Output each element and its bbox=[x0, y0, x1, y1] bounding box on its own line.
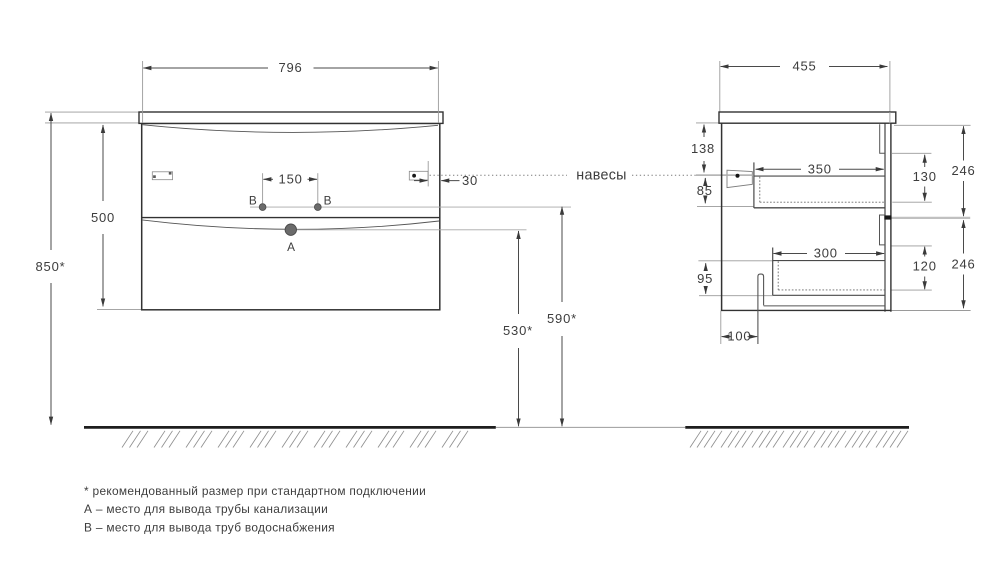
svg-text:500: 500 bbox=[91, 210, 115, 225]
svg-text:530*: 530* bbox=[503, 323, 533, 338]
svg-text:A: A bbox=[287, 240, 295, 254]
svg-text:30: 30 bbox=[462, 173, 478, 188]
svg-text:455: 455 bbox=[792, 59, 816, 74]
svg-text:246: 246 bbox=[951, 256, 975, 271]
svg-text:590*: 590* bbox=[547, 311, 577, 326]
svg-text:навесы: навесы bbox=[576, 167, 626, 183]
svg-text:А – место для вывода трубы кан: А – место для вывода трубы канализации bbox=[84, 502, 328, 516]
svg-text:B: B bbox=[324, 194, 332, 208]
svg-text:120: 120 bbox=[913, 259, 937, 274]
svg-text:150: 150 bbox=[279, 171, 303, 186]
svg-text:95: 95 bbox=[697, 271, 713, 286]
svg-text:85: 85 bbox=[697, 183, 713, 198]
svg-text:796: 796 bbox=[278, 60, 302, 75]
svg-text:246: 246 bbox=[951, 163, 975, 178]
svg-text:* рекомендованный размер при с: * рекомендованный размер при стандартном… bbox=[84, 484, 426, 498]
svg-text:300: 300 bbox=[814, 246, 838, 261]
svg-text:B: B bbox=[249, 194, 257, 208]
svg-text:130: 130 bbox=[913, 169, 937, 184]
svg-text:138: 138 bbox=[691, 141, 715, 156]
svg-text:В – место для вывода труб водо: В – место для вывода труб водоснабжения bbox=[84, 520, 335, 534]
svg-text:850*: 850* bbox=[36, 259, 66, 274]
svg-text:350: 350 bbox=[808, 161, 832, 176]
svg-text:100: 100 bbox=[727, 329, 751, 344]
